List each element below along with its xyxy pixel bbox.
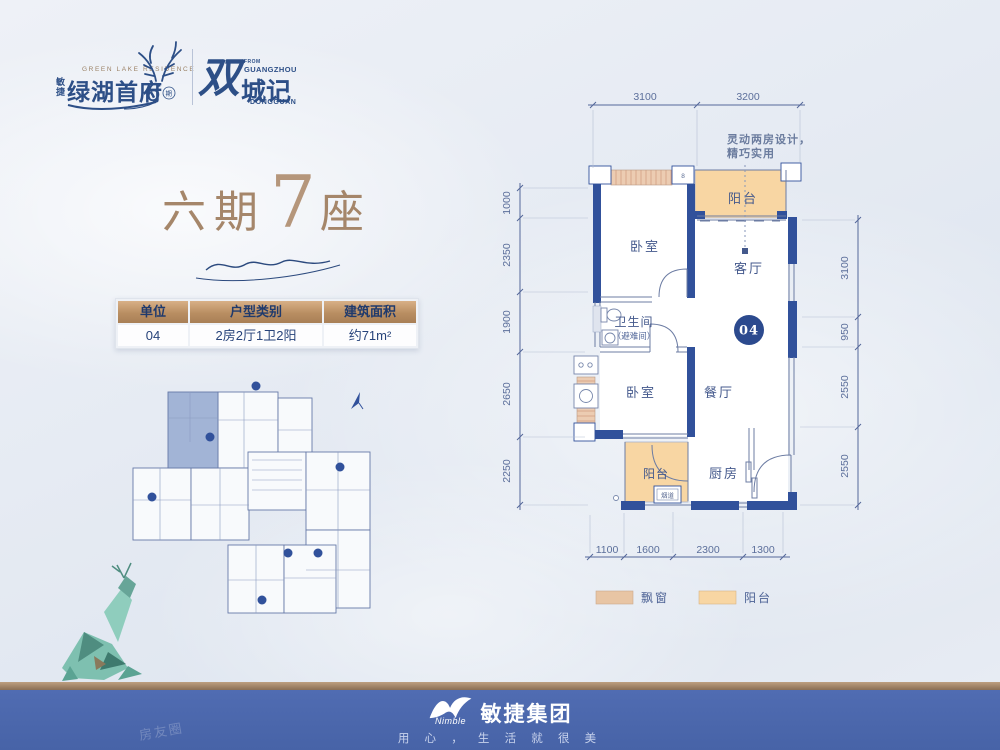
label-bedroom-top: 卧室 <box>630 239 660 255</box>
phase-unit: 期 <box>166 90 173 98</box>
bathroom-window <box>593 306 601 332</box>
label-bedroom-bottom: 卧室 <box>626 385 656 401</box>
balcony-bottom-area <box>625 442 688 502</box>
plan-legend: 飘窗 阳台 <box>596 590 772 605</box>
svg-text:2250: 2250 <box>501 459 513 483</box>
svg-text:2550: 2550 <box>839 454 851 478</box>
page: 敏捷 GREEN LAKE RESIDENCE 绿湖首府 6 期 双 FROM <box>0 0 1000 750</box>
spec-header-unit: 单位 <box>118 301 188 323</box>
svg-text:2650: 2650 <box>501 382 513 406</box>
key-plan-highlight-unit <box>168 392 218 468</box>
bay-window-left <box>577 377 595 424</box>
dimensions-top: 3100 3200 <box>588 91 805 168</box>
spec-value-row: 04 2房2厅1卫2阳 约71m² <box>118 325 416 346</box>
design-callout: 灵动两房设计， 精巧实用 <box>727 132 811 254</box>
label-bathroom: 卫生间 <box>614 315 653 329</box>
spec-value-area: 约71m² <box>324 325 416 346</box>
bay-window-top <box>611 170 672 185</box>
flue-box: 烟道 <box>654 486 681 503</box>
label-balcony-top: 阳台 <box>728 192 758 207</box>
svg-text:3100: 3100 <box>633 91 657 103</box>
svg-text:1600: 1600 <box>636 544 660 556</box>
svg-text:1300: 1300 <box>751 544 775 556</box>
partition-walls <box>595 170 794 507</box>
column-label: 8 <box>681 173 685 180</box>
label-dining: 餐厅 <box>704 385 734 401</box>
label-living: 客厅 <box>734 261 764 277</box>
balcony-top-area <box>695 170 786 218</box>
signature-script <box>196 260 340 280</box>
legend-bay-label: 飘窗 <box>641 591 669 605</box>
svg-text:2300: 2300 <box>696 544 720 556</box>
doors <box>650 269 791 498</box>
footer: Nimble 敏捷集团 用 心 ， 生 活 就 很 美 <box>0 682 1000 750</box>
label-kitchen: 厨房 <box>709 466 739 482</box>
svg-text:1900: 1900 <box>501 310 513 334</box>
fixtures <box>574 308 621 501</box>
laundry-counter-icon <box>574 356 598 374</box>
room-fills <box>577 170 788 502</box>
dimensions-right: 3100 950 2550 2550 <box>800 215 861 510</box>
north-arrow-icon <box>351 392 363 409</box>
svg-text:950: 950 <box>839 323 851 341</box>
brand-logo: 敏捷 GREEN LAKE RESIDENCE 绿湖首府 6 期 双 FROM <box>50 35 320 115</box>
footer-logo-cn: 敏捷集团 <box>481 702 573 726</box>
title-unit: 座 <box>320 176 366 240</box>
svg-text:3200: 3200 <box>736 91 760 103</box>
wall-posts <box>574 163 801 441</box>
legend-bay-swatch <box>596 591 633 604</box>
spec-table: 单位 户型类别 建筑面积 04 2房2厅1卫2阳 约71m² <box>115 298 419 349</box>
floor-plan: 8 <box>574 132 811 510</box>
key-plan-unit-badges <box>148 382 345 605</box>
nimble-mark: Nimble <box>428 694 474 726</box>
sink-counter-icon <box>602 330 618 345</box>
svg-text:1000: 1000 <box>501 191 513 215</box>
walls <box>593 184 797 510</box>
page-title: 六期 7 座 <box>162 172 366 240</box>
title-phase: 六期 <box>162 176 266 240</box>
brand-company: 敏捷 <box>56 77 66 97</box>
svg-text:2550: 2550 <box>839 375 851 399</box>
dual-city-char: 双 <box>198 57 240 99</box>
footer-bar: Nimble 敏捷集团 用 心 ， 生 活 就 很 美 <box>0 690 1000 750</box>
svg-text:2350: 2350 <box>501 243 513 267</box>
label-bathroom-note: （避难间） <box>613 331 656 342</box>
svg-text:1100: 1100 <box>596 544 619 556</box>
flue-label: 烟道 <box>661 491 675 500</box>
footer-logo-en: Nimble <box>435 717 466 726</box>
svg-text:04: 04 <box>739 324 759 339</box>
footer-bronze-strip <box>0 682 1000 690</box>
legend-balcony-swatch <box>699 591 736 604</box>
dimensions-bottom: 1100 1600 2300 1300 <box>585 512 790 560</box>
title-number: 7 <box>270 172 316 232</box>
deer-artwork <box>62 563 142 681</box>
antler-icon: 6 期 <box>132 35 188 107</box>
logo-divider <box>192 49 193 105</box>
unit-badge: 04 <box>734 315 764 345</box>
phase-number: 6 <box>146 77 161 107</box>
spec-value-unit: 04 <box>118 325 188 346</box>
toilet-icon <box>601 308 607 322</box>
toilet-bowl-icon <box>607 309 621 321</box>
dimensions-left: 1000 2350 1900 2650 2250 <box>501 183 588 510</box>
svg-text:3100: 3100 <box>839 256 851 280</box>
spec-value-type: 2房2厅1卫2阳 <box>190 325 322 346</box>
footer-logo: Nimble 敏捷集团 <box>428 694 573 726</box>
callout-line1: 灵动两房设计， <box>727 132 811 146</box>
footer-tagline: 用 心 ， 生 活 就 很 美 <box>398 730 602 746</box>
city-dongguan: DONGGUAN <box>250 99 296 106</box>
spec-header-area: 建筑面积 <box>324 301 416 323</box>
sink-icon <box>605 333 615 343</box>
key-plan <box>133 382 370 614</box>
callout-line2: 精巧实用 <box>727 146 775 160</box>
label-balcony-bottom: 阳台 <box>643 466 669 481</box>
legend-balcony-label: 阳台 <box>744 590 772 605</box>
spec-header-row: 单位 户型类别 建筑面积 <box>118 301 416 323</box>
washer-icon <box>574 384 598 408</box>
spec-header-type: 户型类别 <box>190 301 322 323</box>
